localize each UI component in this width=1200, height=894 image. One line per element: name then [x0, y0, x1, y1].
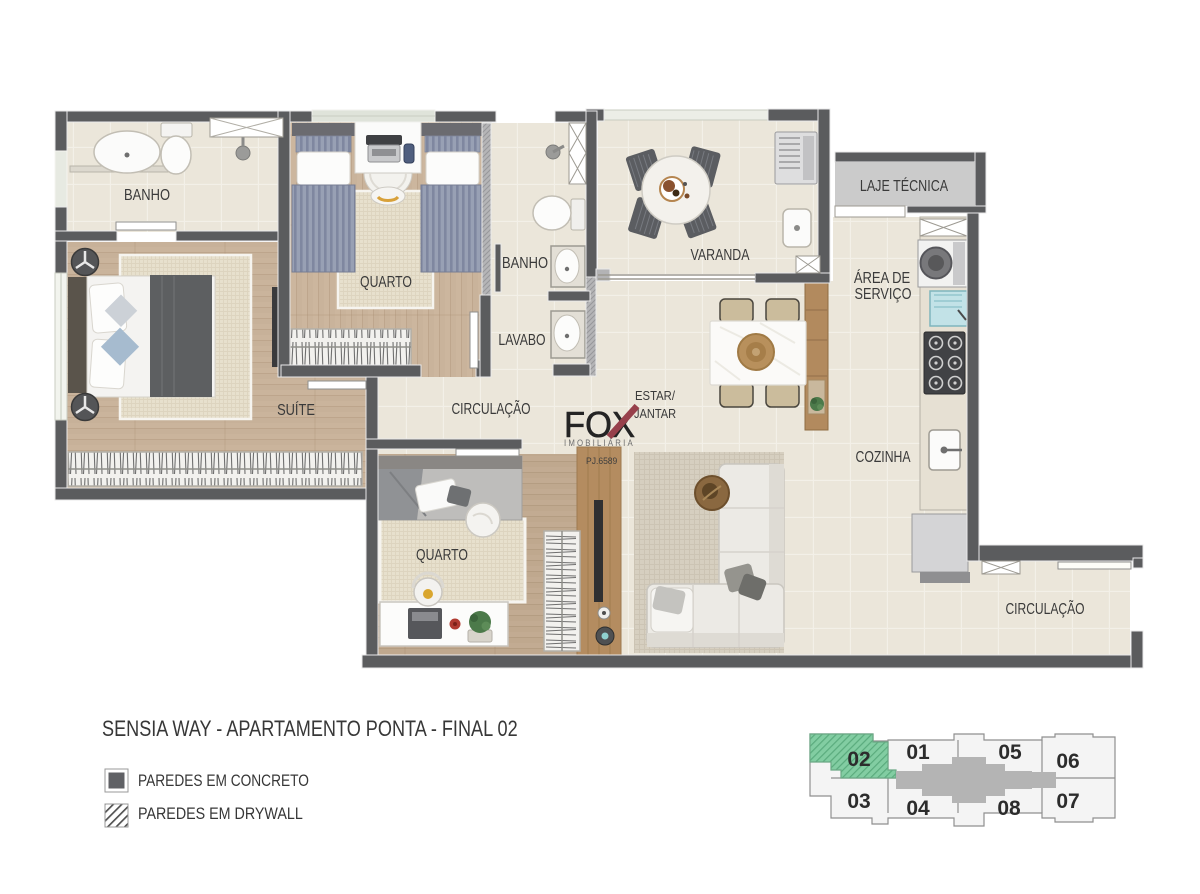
svg-text:IMOBILIÁRIA: IMOBILIÁRIA	[564, 437, 635, 448]
svg-text:PJ.6589: PJ.6589	[586, 456, 617, 467]
svg-text:QUARTO: QUARTO	[416, 546, 468, 564]
svg-text:PAREDES EM CONCRETO: PAREDES EM CONCRETO	[138, 772, 309, 791]
svg-text:CIRCULAÇÃO: CIRCULAÇÃO	[1005, 600, 1084, 618]
svg-text:LAJE TÉCNICA: LAJE TÉCNICA	[860, 177, 949, 195]
svg-text:07: 07	[1056, 790, 1079, 813]
svg-text:SERVIÇO: SERVIÇO	[855, 286, 912, 303]
svg-text:LAVABO: LAVABO	[498, 331, 545, 349]
svg-text:PAREDES EM DRYWALL: PAREDES EM DRYWALL	[138, 805, 303, 823]
svg-text:06: 06	[1056, 750, 1079, 773]
svg-text:BANHO: BANHO	[124, 187, 170, 204]
svg-text:COZINHA: COZINHA	[855, 448, 911, 466]
svg-text:VARANDA: VARANDA	[691, 246, 751, 264]
svg-text:ÁREA DE: ÁREA DE	[854, 269, 910, 287]
svg-text:08: 08	[997, 797, 1021, 820]
svg-text:SENSIA WAY - APARTAMENTO PONTA: SENSIA WAY - APARTAMENTO PONTA - FINAL 0…	[102, 717, 518, 741]
svg-text:CIRCULAÇÃO: CIRCULAÇÃO	[451, 400, 530, 418]
svg-text:ESTAR/: ESTAR/	[635, 388, 676, 403]
svg-text:JANTAR: JANTAR	[634, 406, 676, 421]
svg-text:BANHO: BANHO	[502, 255, 548, 272]
svg-text:03: 03	[847, 790, 870, 813]
svg-text:02: 02	[847, 748, 870, 771]
svg-text:05: 05	[998, 741, 1022, 764]
svg-text:04: 04	[906, 797, 930, 820]
svg-text:QUARTO: QUARTO	[360, 273, 412, 291]
svg-text:01: 01	[906, 741, 930, 764]
svg-text:SUÍTE: SUÍTE	[277, 401, 315, 419]
